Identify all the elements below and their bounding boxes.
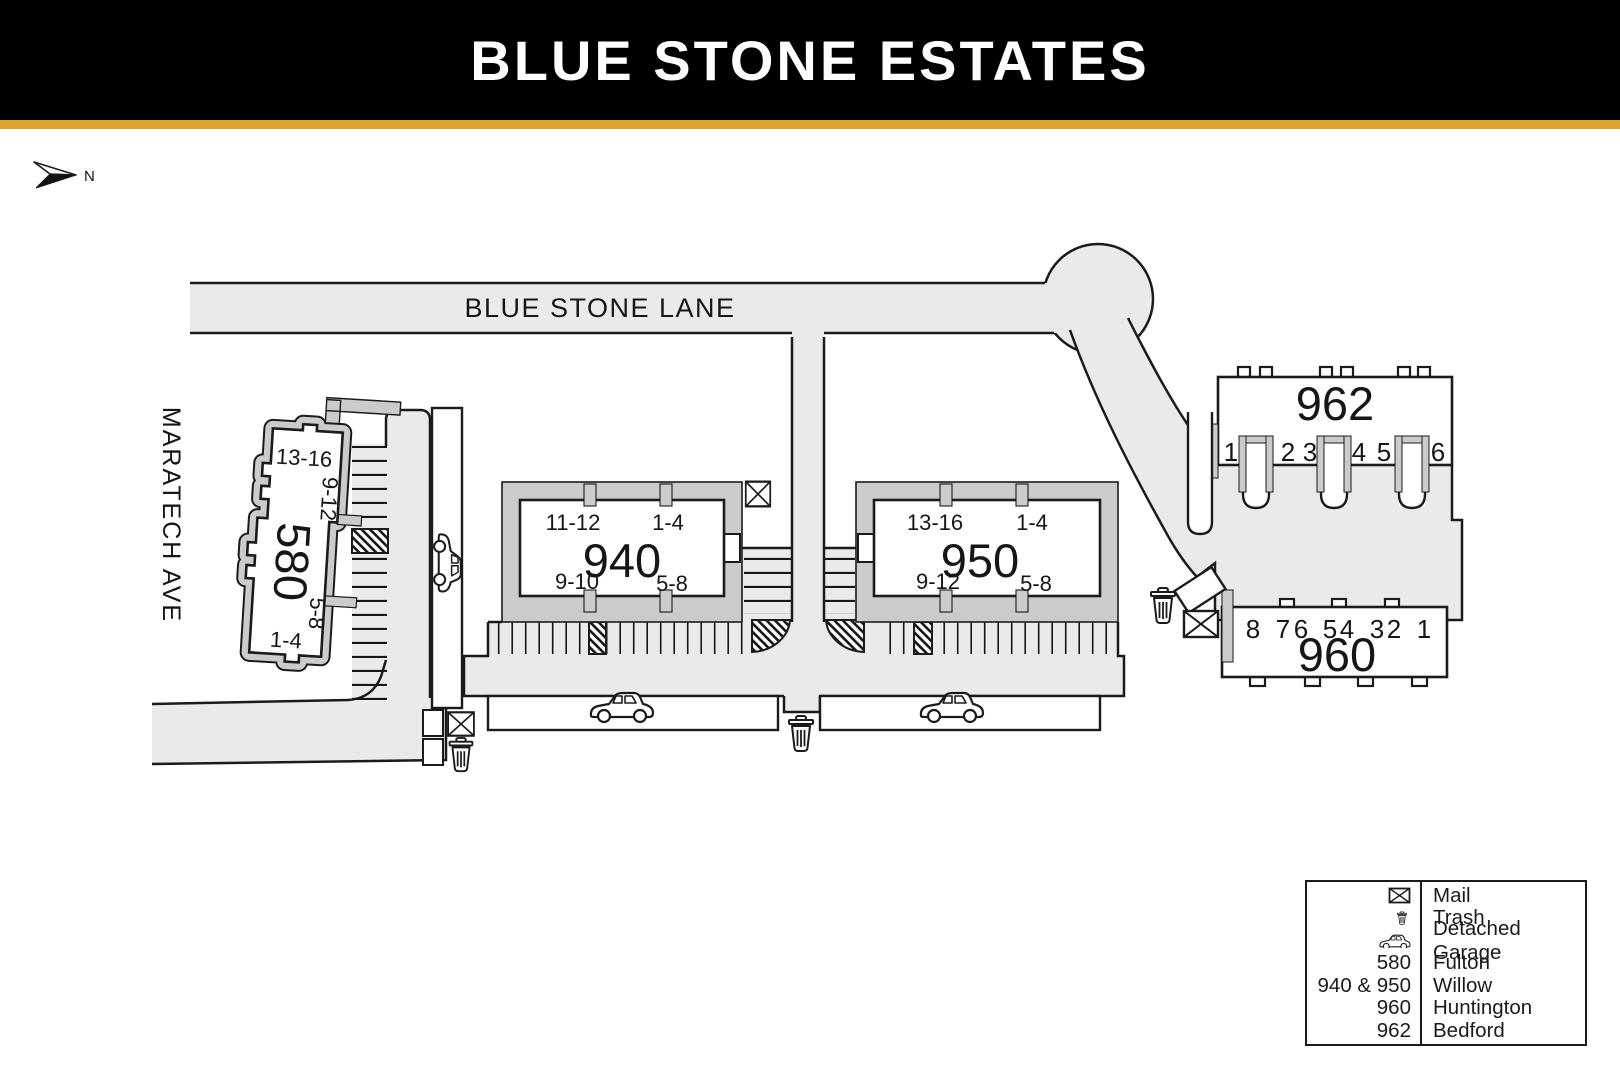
legend-label-garage: Detached Garage <box>1433 929 1585 952</box>
legend-label-willow: Willow <box>1433 974 1585 997</box>
building-940-unit-label: 5-8 <box>656 571 688 596</box>
building-580-unit-label: 9-12 <box>315 476 343 521</box>
building-960-unit-label: 8 <box>1246 614 1260 644</box>
building-940-unit-label: 11-12 <box>546 510 601 535</box>
building-962-unit-label: 3 <box>1303 437 1317 467</box>
utility-pad <box>423 710 443 736</box>
building-580-unit-label: 1-4 <box>269 627 302 654</box>
legend-label-fulton: Fulton <box>1433 952 1585 975</box>
mail-icon <box>1184 611 1218 637</box>
building-962-unit-label: 5 <box>1377 437 1391 467</box>
building-960-number: 960 <box>1298 628 1376 681</box>
legend-label-huntington: Huntington <box>1433 997 1585 1020</box>
building-940-unit-label: 9-10 <box>555 569 599 594</box>
maratech-ave-label: MARATECH AVE <box>157 407 185 623</box>
mail-icon <box>1388 887 1411 904</box>
building-950-unit-label: 9-12 <box>916 569 960 594</box>
trash-icon <box>1393 908 1411 929</box>
building-962: 962 1 2 3 4 5 6 <box>1202 367 1452 508</box>
building-962-unit-label: 1 <box>1224 437 1238 467</box>
building-960-unit-label: 1 <box>1417 614 1431 644</box>
entry-road <box>152 666 384 764</box>
legend-key-940-950: 940 & 950 <box>1318 974 1411 997</box>
trash-icon <box>789 716 813 751</box>
building-960-unit-label: 7 <box>1276 614 1290 644</box>
building-960-walkway <box>1222 590 1233 662</box>
trash-icon <box>450 738 473 771</box>
trash-icon <box>1151 588 1175 623</box>
legend-key-960: 960 <box>1377 997 1411 1020</box>
site-map-page: 11-12 1-4 940 9-10 5-8 13-16 1-4 950 9-1… <box>0 0 1620 1080</box>
blue-stone-lane-label: BLUE STONE LANE <box>464 293 735 323</box>
lawn-island <box>1188 412 1212 534</box>
building-940-unit-label: 1-4 <box>652 510 684 535</box>
north-arrow-icon <box>36 174 76 188</box>
building-950-unit-label: 13-16 <box>907 510 963 535</box>
utility-pad <box>423 739 443 765</box>
legend-label-bedford: Bedford <box>1433 1019 1585 1042</box>
header-banner: BLUE STONE ESTATES <box>0 0 1620 129</box>
building-580-unit-label: 5-8 <box>304 597 331 630</box>
building-960-unit-label: 2 <box>1387 614 1401 644</box>
legend-key-580: 580 <box>1377 952 1411 975</box>
legend-keys-column: 580 940 & 950 960 962 <box>1307 882 1420 1044</box>
legend-label-mail: Mail <box>1433 884 1585 907</box>
legend-labels-column: Mail Trash Detached Garage Fulton Willow… <box>1420 882 1585 1044</box>
legend-key-mail <box>1388 884 1411 907</box>
legend-box: 580 940 & 950 960 962 Mail Trash Detache… <box>1305 880 1587 1046</box>
legend-key-962: 962 <box>1377 1019 1411 1042</box>
page-title: BLUE STONE ESTATES <box>470 28 1149 93</box>
north-arrow: N <box>34 162 95 188</box>
building-962-unit-label: 6 <box>1431 437 1445 467</box>
building-940: 11-12 1-4 940 9-10 5-8 <box>502 482 742 622</box>
building-962-number: 962 <box>1296 377 1374 430</box>
north-label: N <box>84 168 95 185</box>
building-950: 13-16 1-4 950 9-12 5-8 <box>856 482 1118 622</box>
legend-key-garage <box>1379 929 1411 952</box>
building-950-unit-label: 5-8 <box>1020 571 1052 596</box>
car-icon <box>1379 934 1411 948</box>
building-950-unit-label: 1-4 <box>1016 510 1048 535</box>
mail-icon <box>448 712 474 735</box>
mail-icon <box>746 482 770 507</box>
building-962-unit-label: 2 <box>1281 437 1295 467</box>
building-580-number: 580 <box>263 521 321 603</box>
building-962-unit-label: 4 <box>1352 437 1366 467</box>
legend-key-trash <box>1393 907 1411 930</box>
building-580-unit-label: 13-16 <box>275 444 333 472</box>
north-arrow-icon <box>34 162 76 175</box>
